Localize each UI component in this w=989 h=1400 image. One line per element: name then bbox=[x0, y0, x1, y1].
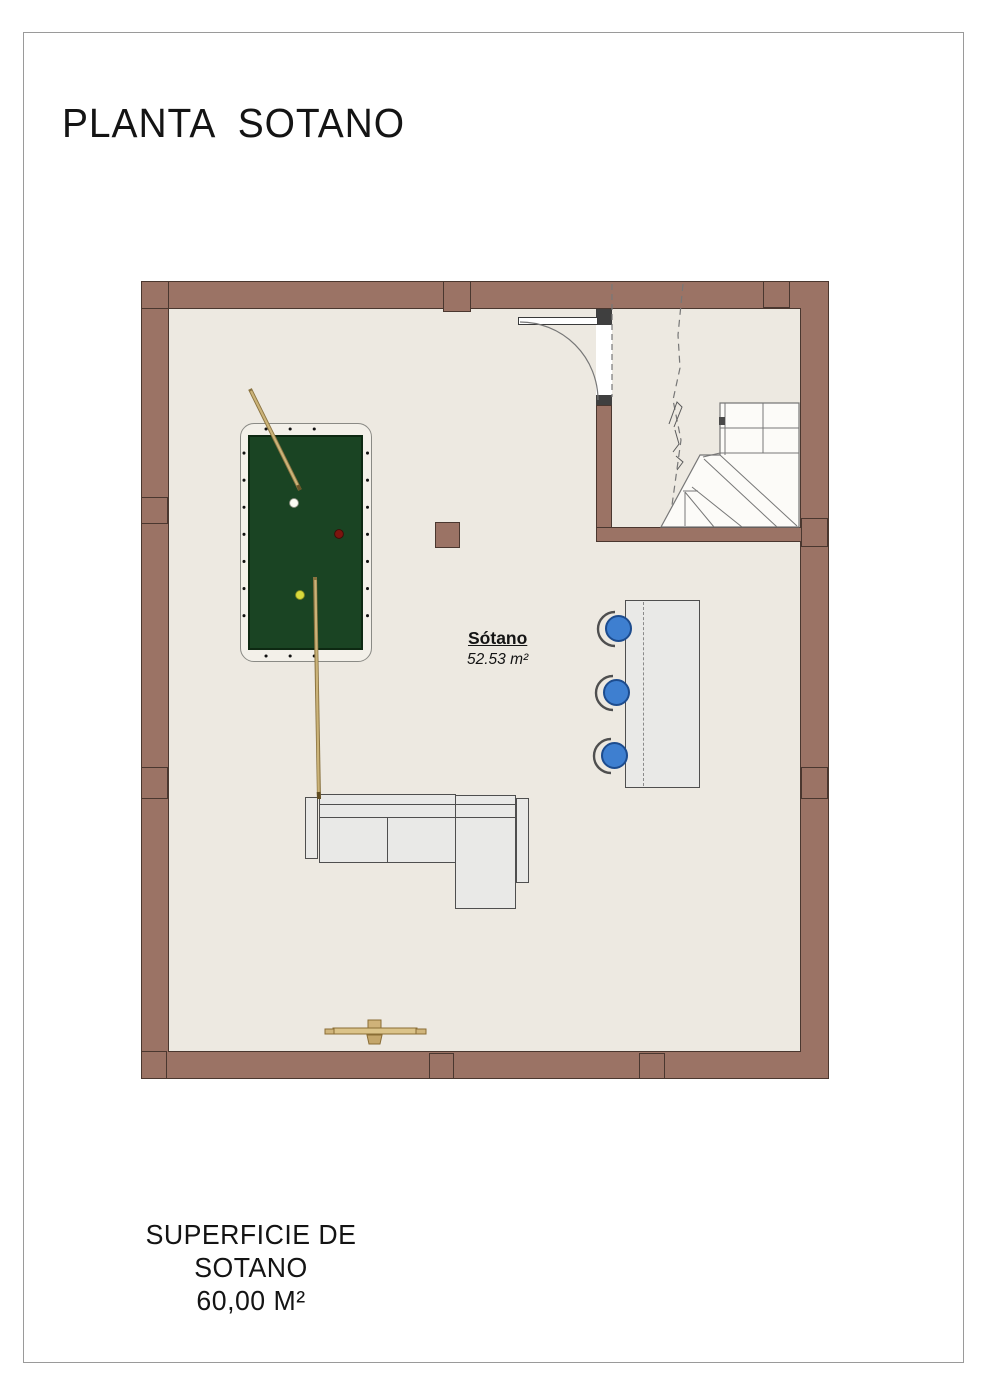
wall-pilaster bbox=[639, 1053, 665, 1079]
wall-pilaster bbox=[801, 767, 828, 799]
room-label: Sótano bbox=[468, 628, 527, 649]
stair-enclosure-wall bbox=[596, 405, 612, 529]
wall-pilaster bbox=[429, 1053, 454, 1079]
surface-caption-line1: SUPERFICIE DE SOTANO bbox=[109, 1218, 392, 1284]
surface-caption: SUPERFICIE DE SOTANO 60,00 M² bbox=[109, 1218, 392, 1317]
room-area-label: 52.53 m² bbox=[467, 651, 528, 669]
bar-counter-overhang-line bbox=[643, 602, 644, 786]
bar-counter bbox=[625, 600, 700, 788]
bar-stool bbox=[603, 679, 630, 706]
basement-floor bbox=[168, 308, 801, 1052]
wall-pilaster bbox=[141, 281, 169, 309]
wall-pilaster bbox=[763, 281, 790, 308]
surface-caption-line2: 60,00 M² bbox=[109, 1284, 392, 1317]
wall-pilaster bbox=[141, 767, 168, 799]
stair-enclosure-wall bbox=[596, 527, 802, 542]
sofa-chaise bbox=[455, 795, 516, 909]
support-column bbox=[435, 522, 460, 548]
pool-table-felt bbox=[248, 435, 363, 650]
sofa-backrest-line bbox=[320, 817, 516, 818]
wall-pilaster bbox=[443, 281, 471, 312]
bar-stool bbox=[605, 615, 632, 642]
sofa-armrest bbox=[516, 798, 529, 883]
wall-pilaster bbox=[141, 497, 168, 524]
door-jamb bbox=[596, 395, 612, 405]
door-leaf bbox=[518, 317, 598, 325]
page-title: PLANTA SOTANO bbox=[62, 100, 405, 147]
door-jamb bbox=[596, 309, 612, 325]
wall-pilaster bbox=[801, 518, 828, 547]
bar-stool bbox=[601, 742, 628, 769]
sofa-armrest bbox=[305, 797, 318, 859]
plan-sheet: PLANTA SOTANO Sótano 52.53 m² bbox=[0, 0, 989, 1400]
wall-pilaster bbox=[141, 1051, 167, 1079]
sofa-backrest-line bbox=[320, 804, 516, 805]
door-opening bbox=[596, 325, 612, 395]
sofa-seat-divider bbox=[387, 818, 388, 863]
